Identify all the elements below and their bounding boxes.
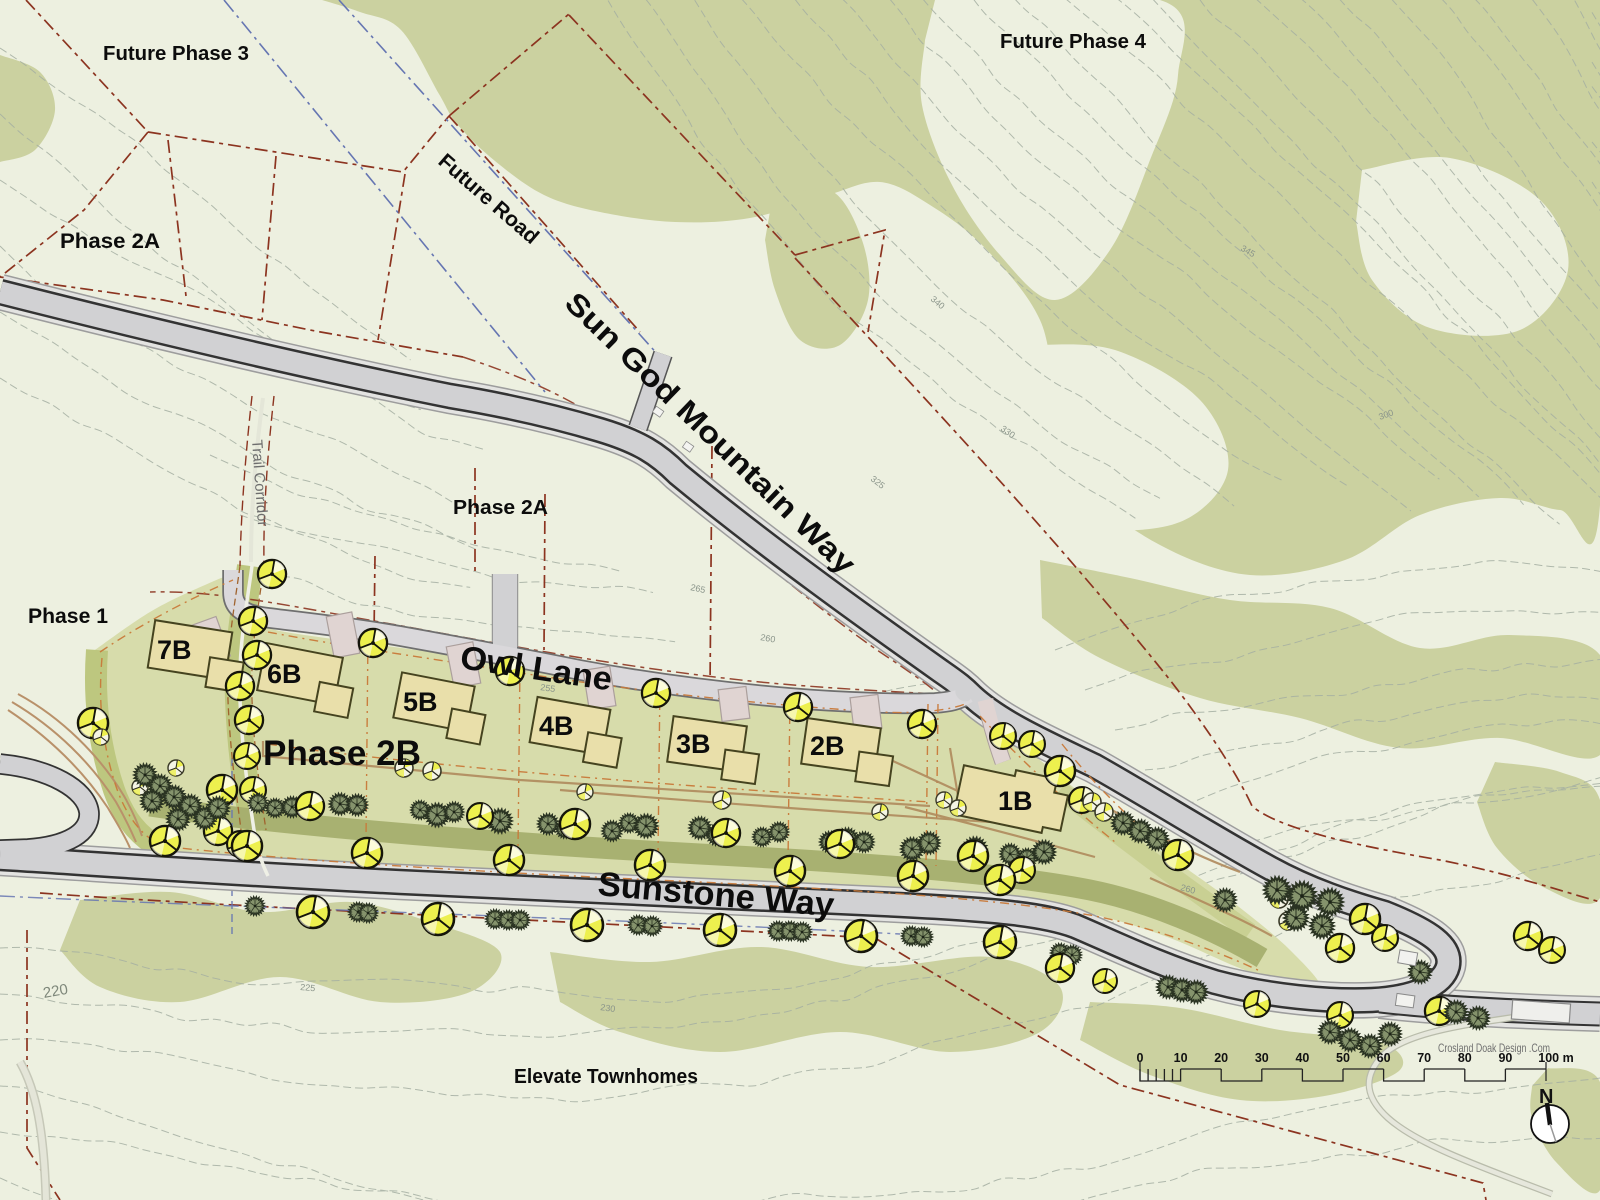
svg-text:10: 10 — [1174, 1051, 1188, 1065]
svg-text:80: 80 — [1458, 1051, 1472, 1065]
svg-text:Crosland Doak Design .Com: Crosland Doak Design .Com — [1438, 1041, 1550, 1055]
svg-text:6B: 6B — [267, 659, 302, 689]
svg-text:5B: 5B — [403, 687, 438, 717]
svg-text:Phase 1: Phase 1 — [28, 605, 108, 628]
svg-text:Future Phase 3: Future Phase 3 — [103, 43, 249, 65]
svg-text:255: 255 — [540, 682, 556, 694]
svg-text:20: 20 — [1214, 1051, 1228, 1065]
svg-text:230: 230 — [600, 1002, 616, 1014]
svg-text:Elevate Townhomes: Elevate Townhomes — [514, 1066, 698, 1088]
svg-text:Future Phase 4: Future Phase 4 — [1000, 31, 1147, 53]
svg-text:40: 40 — [1295, 1051, 1309, 1065]
svg-text:4B: 4B — [539, 711, 574, 741]
svg-text:Phase 2A: Phase 2A — [60, 230, 160, 253]
svg-text:N: N — [1539, 1086, 1553, 1108]
svg-text:30: 30 — [1255, 1051, 1269, 1065]
svg-text:1B: 1B — [998, 786, 1033, 816]
svg-text:50: 50 — [1336, 1051, 1350, 1065]
svg-text:100 m: 100 m — [1538, 1051, 1573, 1065]
svg-text:225: 225 — [300, 982, 316, 993]
svg-text:0: 0 — [1137, 1051, 1144, 1065]
svg-text:60: 60 — [1377, 1051, 1391, 1065]
svg-text:70: 70 — [1417, 1051, 1431, 1065]
svg-text:7B: 7B — [157, 635, 192, 665]
svg-text:2B: 2B — [810, 731, 845, 761]
svg-text:3B: 3B — [676, 729, 711, 759]
svg-text:Phase 2B: Phase 2B — [263, 734, 421, 773]
svg-text:90: 90 — [1498, 1051, 1512, 1065]
svg-text:Phase 2A: Phase 2A — [453, 497, 548, 519]
